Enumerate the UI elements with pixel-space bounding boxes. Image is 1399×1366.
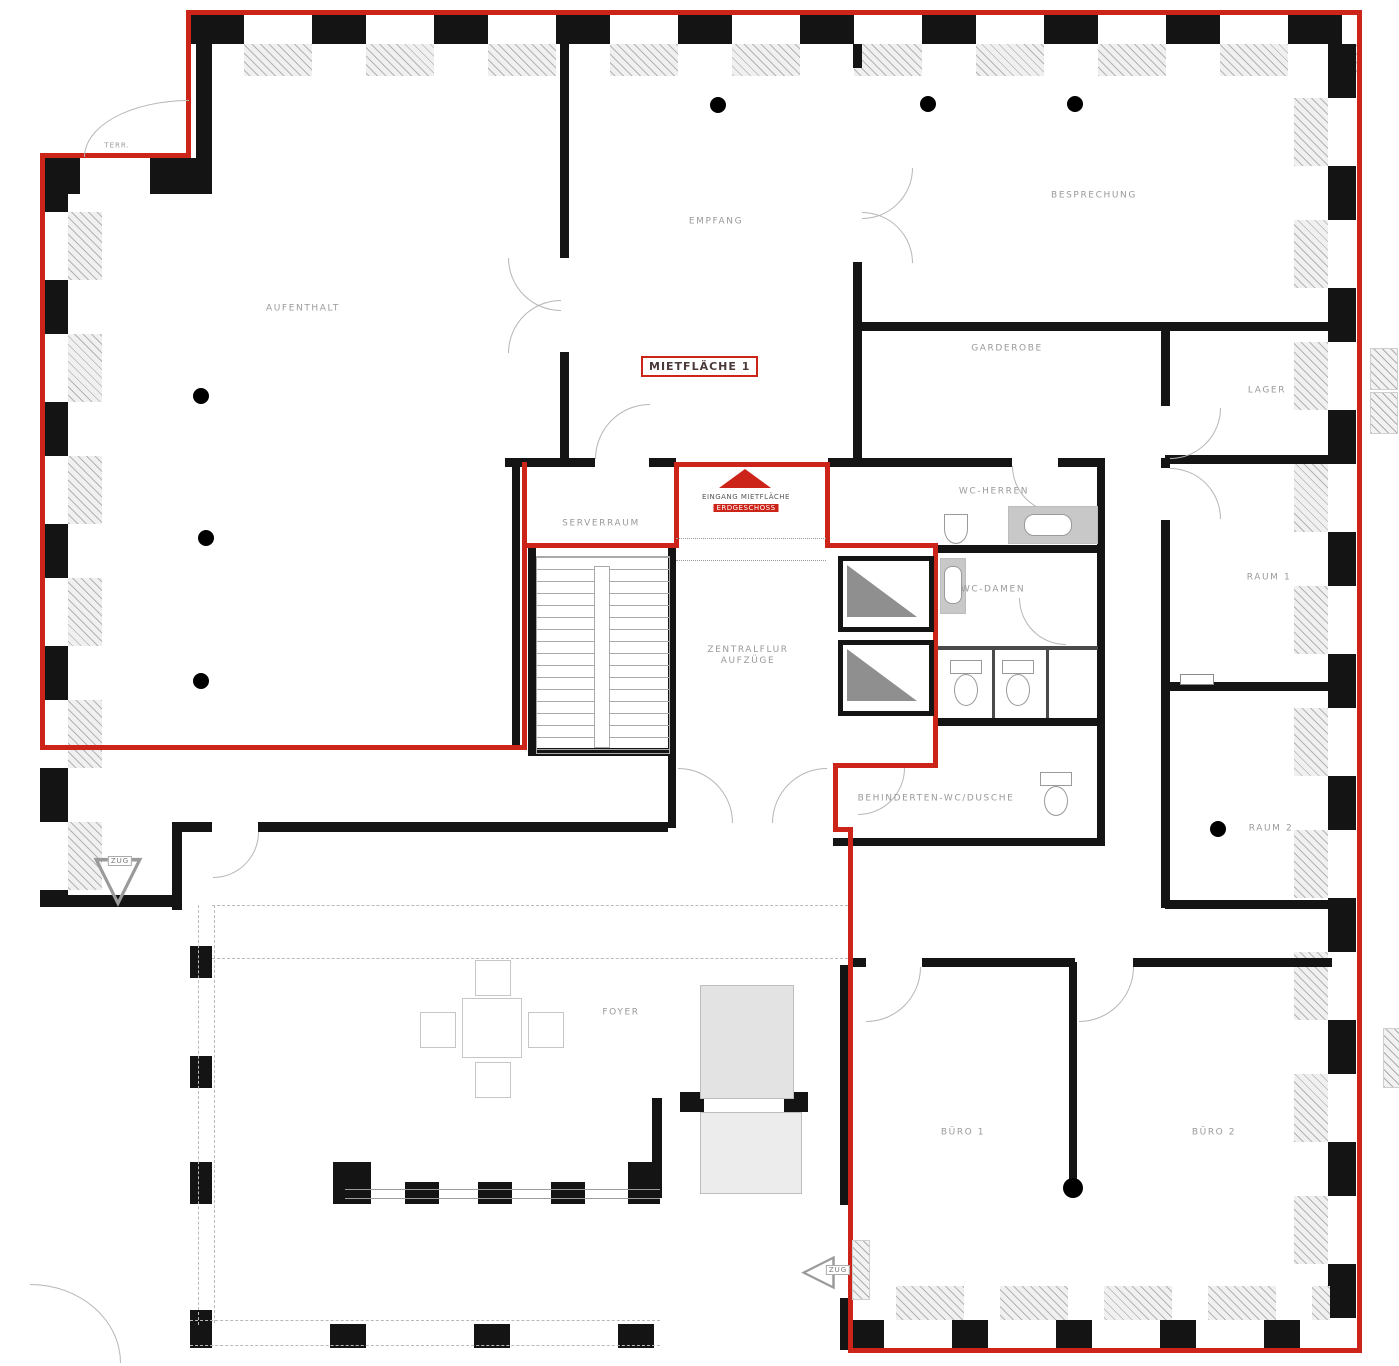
- wall-segment: [512, 462, 520, 750]
- room-label-serverraum: SERVERRAUM: [562, 519, 640, 530]
- wall-segment: [938, 718, 1105, 726]
- facade-top-wall-band: [190, 14, 1358, 44]
- wall-segment: [853, 322, 1332, 331]
- wall-segment: [1097, 458, 1105, 846]
- entrance-label-line2: ERDGESCHOSS: [713, 504, 778, 512]
- wall-segment: [1161, 520, 1170, 688]
- room-label-besprechung: BESPRECHUNG: [1051, 191, 1137, 202]
- door-swing-arc: [772, 768, 827, 823]
- elevator-icon: [847, 565, 917, 617]
- zentralflur-line2: AUFZÜGE: [707, 656, 788, 667]
- door-swing-arc: [1170, 408, 1221, 459]
- wall-segment: [560, 44, 569, 258]
- door-swing-arc: [862, 168, 913, 219]
- column: [1067, 96, 1083, 112]
- toilet: [1040, 772, 1072, 786]
- door-swing-arc: [508, 300, 561, 353]
- exterior-hatch-box: [1370, 348, 1398, 390]
- wall-segment: [853, 262, 862, 462]
- stall-partition: [1046, 646, 1049, 718]
- wall-segment: [938, 545, 1105, 553]
- pillar: [190, 946, 212, 978]
- entry-bottom-label: ZUG: [826, 1265, 850, 1275]
- terrace-label: TERR.: [104, 141, 129, 152]
- column: [193, 388, 209, 404]
- facade-bottom-wall-band: [848, 1320, 1360, 1348]
- rental-boundary-segment: [674, 462, 679, 548]
- entrance-arrow-icon: [719, 469, 771, 488]
- wall-segment: [508, 822, 668, 832]
- toilet: [1006, 674, 1030, 706]
- column: [1063, 1178, 1083, 1198]
- room-label-lager: LAGER: [1248, 386, 1286, 397]
- chair: [420, 1012, 456, 1048]
- wall-segment: [840, 965, 848, 1205]
- zentralflur-line1: ZENTRALFLUR: [707, 645, 788, 656]
- room-label-zentralflur: ZENTRALFLUR AUFZÜGE: [707, 645, 788, 667]
- door-swing-arc: [1170, 468, 1221, 519]
- stall-partition: [938, 646, 1098, 650]
- toilet: [954, 674, 978, 706]
- rental-boundary-segment: [522, 543, 679, 548]
- rental-boundary-segment: [825, 543, 938, 548]
- facade-left-window-sills: [68, 158, 102, 905]
- canopy-dashed-line: [214, 905, 215, 1323]
- column: [710, 97, 726, 113]
- exterior-hatch-box: [1383, 1028, 1399, 1088]
- door-swing-arc: [84, 100, 189, 157]
- wall-segment: [828, 458, 1012, 467]
- column: [198, 530, 214, 546]
- sink: [944, 566, 962, 604]
- room-label-garderobe: GARDEROBE: [971, 344, 1043, 355]
- rental-boundary-segment: [40, 153, 45, 750]
- wall-segment: [1161, 322, 1170, 406]
- rental-boundary-segment: [186, 10, 1362, 15]
- rental-area-tag: MIETFLÄCHE 1: [641, 356, 758, 377]
- door-swing-arc: [30, 1284, 121, 1363]
- canopy-dashed-line: [212, 905, 848, 906]
- wall-segment: [1165, 900, 1332, 909]
- wall-segment: [46, 158, 80, 194]
- urinal: [944, 514, 968, 544]
- rental-boundary-segment: [522, 462, 527, 750]
- toilet: [1044, 786, 1068, 816]
- room-label-aufenthalt: AUFENTHALT: [266, 304, 340, 315]
- column: [920, 96, 936, 112]
- canopy-dashed-line: [212, 958, 848, 959]
- room-label-behinderten-wc: BEHINDERTEN-WC/DUSCHE: [858, 794, 1015, 805]
- elevator-shaft: [838, 556, 934, 632]
- door-swing-arc: [595, 404, 650, 459]
- elevator-icon: [847, 649, 917, 701]
- wall-segment: [348, 822, 508, 832]
- canopy-dashed-line: [190, 1345, 660, 1346]
- chair: [475, 1062, 511, 1098]
- entrance-mat: [700, 1112, 802, 1194]
- door-swing-arc: [866, 967, 921, 1022]
- sink: [1024, 514, 1072, 536]
- room-label-foyer: FOYER: [602, 1008, 639, 1019]
- toilet: [1002, 660, 1034, 674]
- chair: [475, 960, 511, 996]
- facade-top-window-sills: [190, 44, 1358, 76]
- toilet: [950, 660, 982, 674]
- pillar: [190, 1162, 212, 1204]
- rental-boundary-segment: [40, 745, 527, 750]
- canopy-dashed-line: [198, 905, 199, 1325]
- wall-segment: [150, 158, 212, 194]
- rental-boundary-segment: [848, 1348, 1362, 1353]
- room-label-buero1: BÜRO 1: [941, 1128, 985, 1139]
- room-label-buero2: BÜRO 2: [1192, 1128, 1236, 1139]
- wall-segment: [258, 822, 348, 832]
- rental-boundary-segment: [674, 462, 830, 467]
- ceiling-change-line: [676, 560, 826, 561]
- room-label-raum1: RAUM 1: [1247, 573, 1292, 584]
- rental-boundary-segment: [833, 763, 838, 832]
- floor-plan-canvas: EINGANG MIETFLÄCHE ERDGESCHOSS ▽ ZUG ◁ Z…: [0, 0, 1399, 1366]
- door-swing-arc: [213, 832, 259, 878]
- room-label-wc-damen: WC-DAMEN: [961, 585, 1025, 596]
- entrance-label-line1: EINGANG MIETFLÄCHE: [702, 493, 790, 501]
- door-swing-arc: [858, 768, 905, 815]
- wall-segment: [840, 1298, 848, 1350]
- glazing-line: [345, 1189, 660, 1199]
- wall-segment: [649, 458, 676, 467]
- room-label-empfang: EMPFANG: [689, 217, 743, 228]
- ceiling-change-line: [676, 538, 826, 539]
- window-sill: [852, 1240, 870, 1300]
- wall-segment: [1069, 962, 1077, 1188]
- wall-segment: [196, 44, 212, 158]
- canopy-dashed-line: [190, 1320, 660, 1321]
- facade-right-wall-band: [1328, 44, 1356, 1320]
- reception-desk: [700, 985, 794, 1099]
- wall-segment: [833, 838, 1105, 846]
- door-swing-arc: [1079, 967, 1134, 1022]
- wall-segment: [560, 352, 569, 466]
- wall-segment: [922, 958, 1075, 967]
- wall-segment: [853, 44, 862, 68]
- door-leaf: [1180, 674, 1214, 685]
- stair-handrail: [594, 566, 610, 748]
- chair: [528, 1012, 564, 1048]
- rental-boundary-segment: [825, 462, 830, 548]
- door-swing-arc: [862, 212, 913, 263]
- wall-segment: [1161, 682, 1170, 908]
- exterior-hatch-box: [1370, 392, 1398, 434]
- wall-segment: [528, 548, 536, 756]
- facade-bottom-window-sills: [860, 1286, 1330, 1320]
- door-swing-arc: [678, 768, 733, 823]
- stall-partition: [992, 646, 995, 718]
- table: [462, 998, 522, 1058]
- room-label-wc-herren: WC-HERREN: [959, 487, 1029, 498]
- room-label-raum2: RAUM 2: [1249, 824, 1294, 835]
- wall-segment: [1133, 958, 1332, 967]
- wall-segment: [1165, 455, 1332, 464]
- pillar: [190, 1310, 212, 1348]
- entry-left-label: ZUG: [108, 856, 132, 866]
- pillar: [190, 1056, 212, 1088]
- column: [193, 673, 209, 689]
- elevator-shaft: [838, 640, 934, 716]
- door-swing-arc: [1019, 598, 1066, 645]
- column: [1210, 821, 1226, 837]
- rental-boundary-segment: [1357, 10, 1362, 1353]
